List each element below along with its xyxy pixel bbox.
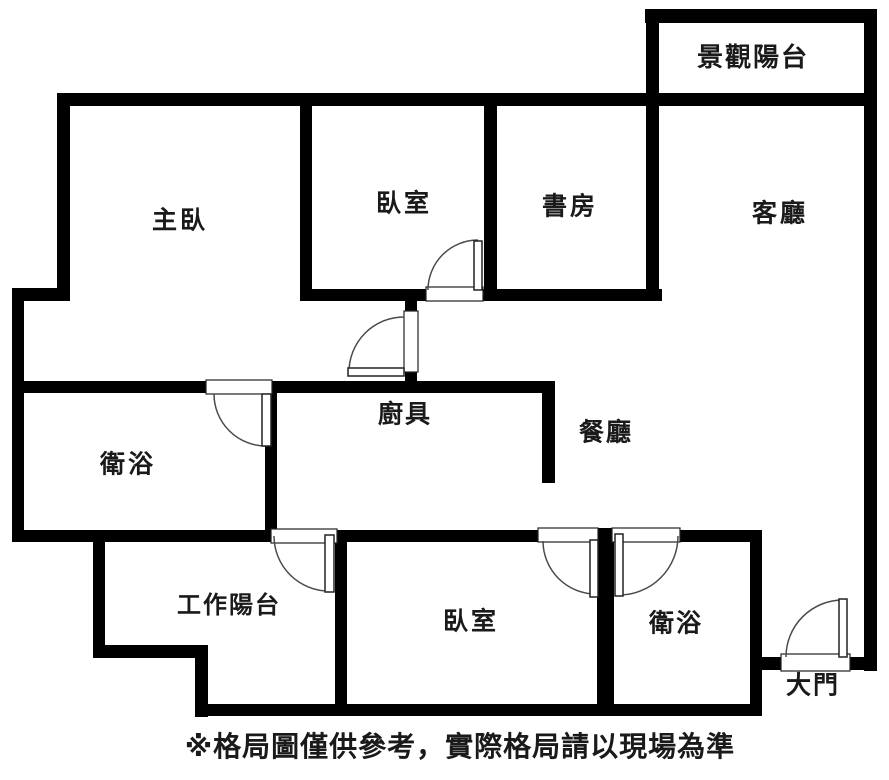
wall-workbalcony-bedroom-divider xyxy=(335,530,347,712)
wall-master-left xyxy=(57,93,70,301)
wall-bedroom-study-divider xyxy=(484,106,497,301)
wall-kitchen-top-right xyxy=(270,381,555,393)
wall-lower-left xyxy=(12,530,273,542)
wall-workbalcony-step-h xyxy=(93,645,208,658)
door-master-suite xyxy=(348,311,418,376)
room-label-bedroom-bottom: 臥室 xyxy=(443,610,499,635)
wall-under-study xyxy=(481,289,662,301)
wall-kitchen-top-left xyxy=(12,381,208,393)
door-main-entry xyxy=(781,599,850,671)
room-label-living-room: 客廳 xyxy=(752,202,808,227)
door-work-balcony xyxy=(271,529,337,592)
wall-kitchen-right xyxy=(542,381,555,483)
wall-top-main xyxy=(57,93,877,106)
wall-entry-left xyxy=(762,657,782,670)
room-label-view-balcony: 景觀陽台 xyxy=(697,44,809,70)
wall-balcony-top xyxy=(645,9,877,23)
wall-bottom xyxy=(195,704,762,716)
room-label-ensuite-bath: 衛浴 xyxy=(100,453,156,478)
wall-outer-left xyxy=(12,288,24,542)
wall-workbalcony-left xyxy=(93,530,105,658)
room-label-bath-bottom: 衛浴 xyxy=(649,612,703,637)
room-label-master-bedroom: 主臥 xyxy=(152,209,208,234)
wall-outer-right xyxy=(864,9,877,671)
door-bath-bottom xyxy=(612,528,680,596)
room-label-kitchen: 廚具 xyxy=(378,403,432,428)
wall-master-bedroom-divider xyxy=(300,93,312,301)
room-label-main-door: 大門 xyxy=(786,674,840,699)
wall-lower-right xyxy=(678,530,762,542)
floor-plan-drawing xyxy=(0,0,889,780)
room-label-study: 書房 xyxy=(542,195,598,220)
room-label-dining: 餐廳 xyxy=(579,421,633,446)
wall-bedroom-bath-divider xyxy=(597,528,614,704)
door-bedroom-bottom xyxy=(538,528,598,597)
wall-lower-mid xyxy=(335,530,538,542)
disclaimer-text: ※格局圖僅供參考，實際格局請以現場為準 xyxy=(185,733,735,761)
wall-balcony-left-study-right xyxy=(646,9,659,301)
room-label-work-balcony: 工作陽台 xyxy=(177,594,281,618)
floor-plan: 景觀陽台 主臥 臥室 書房 客廳 衛浴 廚具 餐廳 工作陽台 臥室 衛浴 大門 … xyxy=(0,0,889,780)
wall-bath-right xyxy=(750,530,762,716)
door-bedroom-top xyxy=(426,240,483,301)
door-ensuite-bath xyxy=(206,380,272,446)
wall-entry-right xyxy=(849,657,877,670)
room-label-bedroom-top: 臥室 xyxy=(376,192,432,217)
